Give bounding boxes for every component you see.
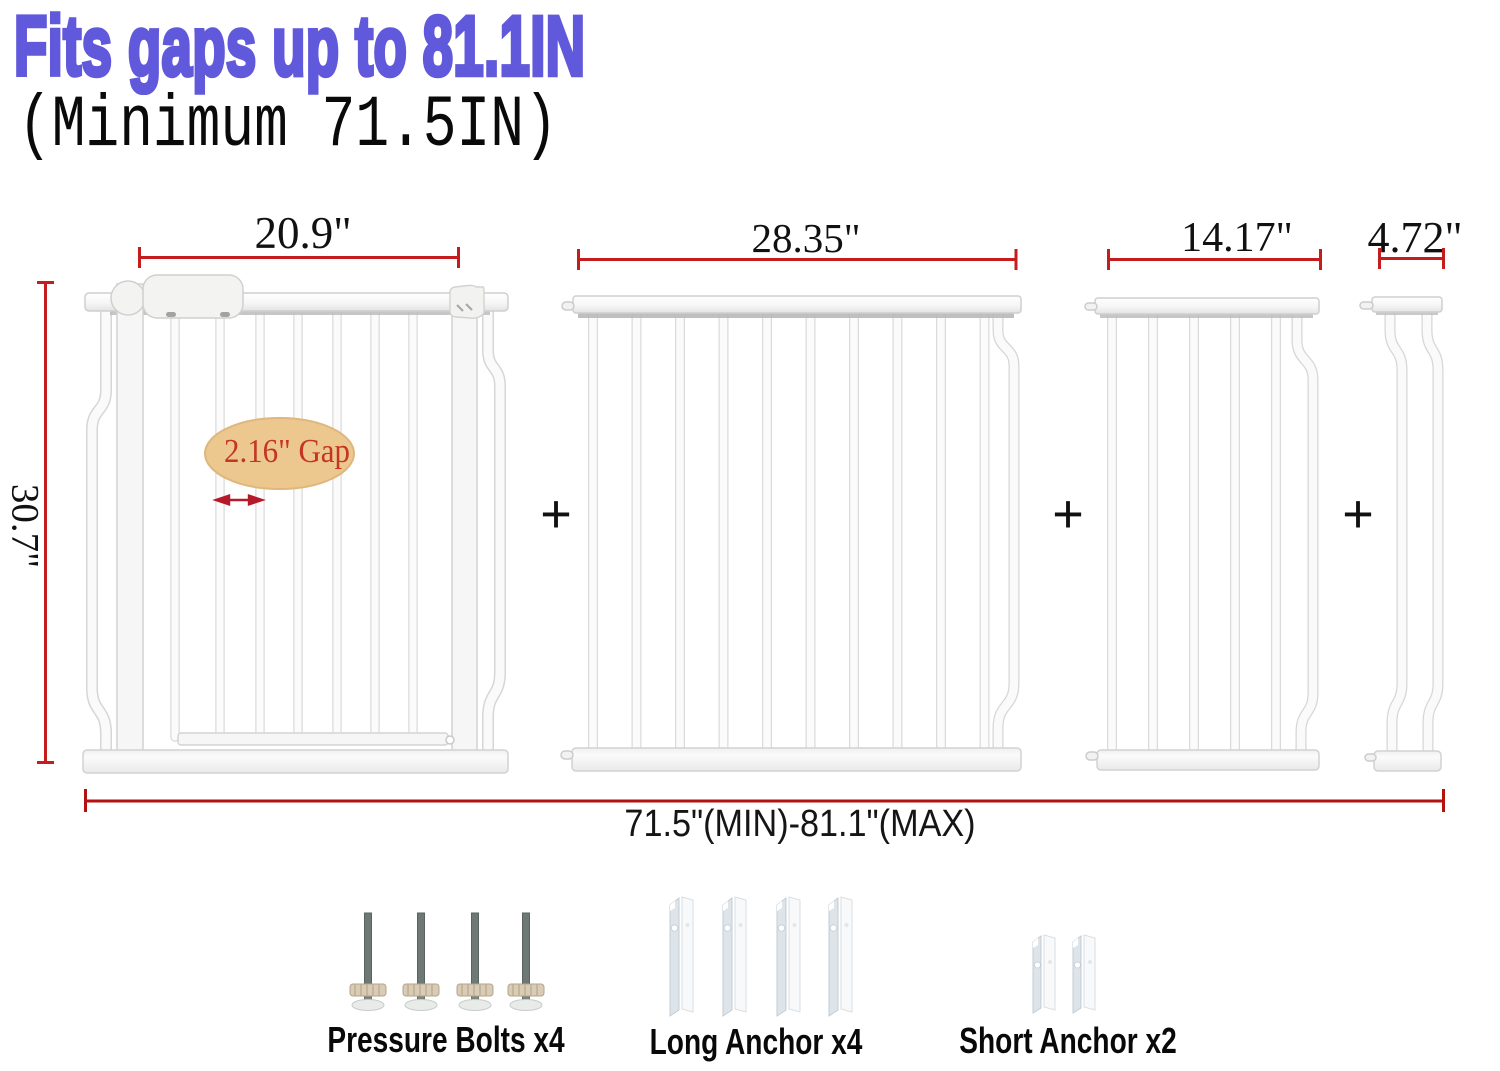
svg-text:2.16" Gap: 2.16" Gap [224,433,350,470]
